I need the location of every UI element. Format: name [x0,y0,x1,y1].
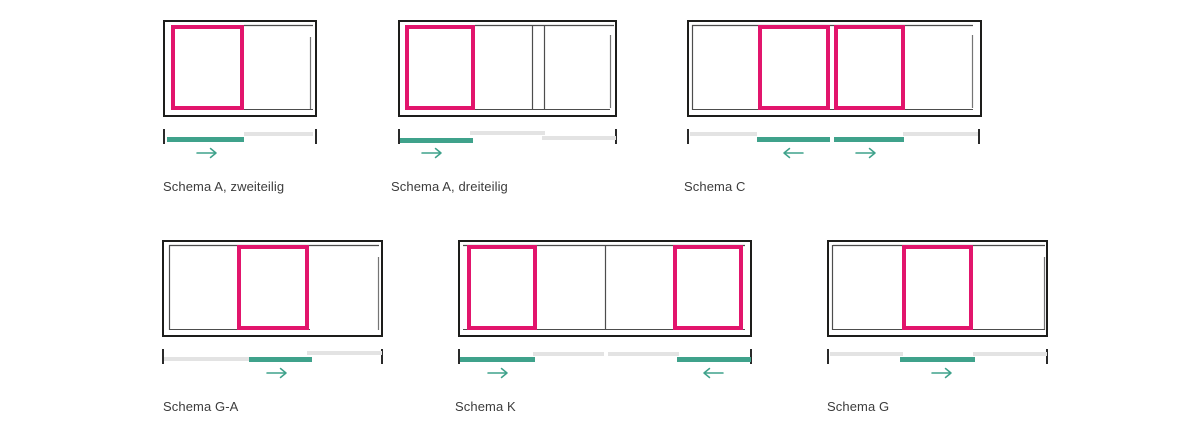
schema-g-diagram [825,238,1052,383]
schema-c-diagram [685,18,986,163]
sliding-panel-left [760,27,828,108]
track-fixed-segment-left [164,357,249,361]
track-fixed-segment [244,132,313,136]
track-active-segment-left [757,137,830,142]
track-fixed-segment-middle [470,131,545,135]
track-fixed-segment-middle-right [608,352,679,356]
arrow-right-icon [267,369,286,378]
schema-label: Schema K [455,399,516,414]
arrow-right-icon [197,149,216,158]
track-active-segment [900,357,975,362]
frame [828,241,1047,336]
track-fixed-segment-middle-left [533,352,604,356]
track-tick-right [315,129,317,144]
schema-label: Schema G-A [163,399,238,414]
arrow-left-icon [784,149,803,158]
schema-a-zweiteilig-diagram [161,18,321,163]
track-tick-left [687,129,689,144]
track-active-segment [167,137,244,142]
schema-label: Schema A, dreiteilig [391,179,508,194]
schema-card-k: Schema K [456,238,756,416]
sliding-panel-right [836,27,903,108]
track-tick-right [1046,349,1048,364]
arrow-right-icon [422,149,441,158]
track-active-segment-left [460,357,535,362]
track-fixed-segment-right [973,352,1047,356]
sliding-panel-left [469,247,535,328]
track-active-segment-right [677,357,751,362]
track-active-segment-right [834,137,904,142]
arrow-right-icon [932,369,951,378]
track-tick-left [458,349,460,364]
schema-a-dreiteilig-diagram [396,18,621,163]
sliding-panel [173,27,242,108]
track-tick-left [162,349,164,364]
track-active-segment [400,138,473,143]
track-fixed-segment-left [690,132,757,136]
schema-card-g-a: Schema G-A [160,238,387,416]
schema-card-c: Schema C [685,18,986,196]
track-fixed-segment-right [307,351,382,355]
frame [163,241,382,336]
schema-card-g: Schema G [825,238,1052,416]
track-tick-left [827,349,829,364]
frame [399,21,616,116]
track-tick-left [398,129,400,144]
schema-card-a-dreiteilig: Schema A, dreiteilig [396,18,621,196]
schema-card-a-zweiteilig: Schema A, zweiteilig [161,18,321,196]
track-fixed-segment-right [542,136,616,140]
sliding-panel [407,27,473,108]
schema-k-diagram [456,238,756,383]
schema-label: Schema A, zweiteilig [163,179,284,194]
schema-g-a-diagram [160,238,387,383]
arrow-right-icon [856,149,875,158]
schema-label: Schema G [827,399,889,414]
sliding-panel-right [675,247,741,328]
track-fixed-segment-right [903,132,978,136]
sliding-panel [904,247,971,328]
track-fixed-segment-left [830,352,903,356]
arrow-right-icon [488,369,507,378]
track-active-segment [249,357,312,362]
track-tick-left [163,129,165,144]
schema-label: Schema C [684,179,746,194]
track-tick-right [978,129,980,144]
arrow-left-icon [704,369,723,378]
sliding-panel [239,247,307,328]
